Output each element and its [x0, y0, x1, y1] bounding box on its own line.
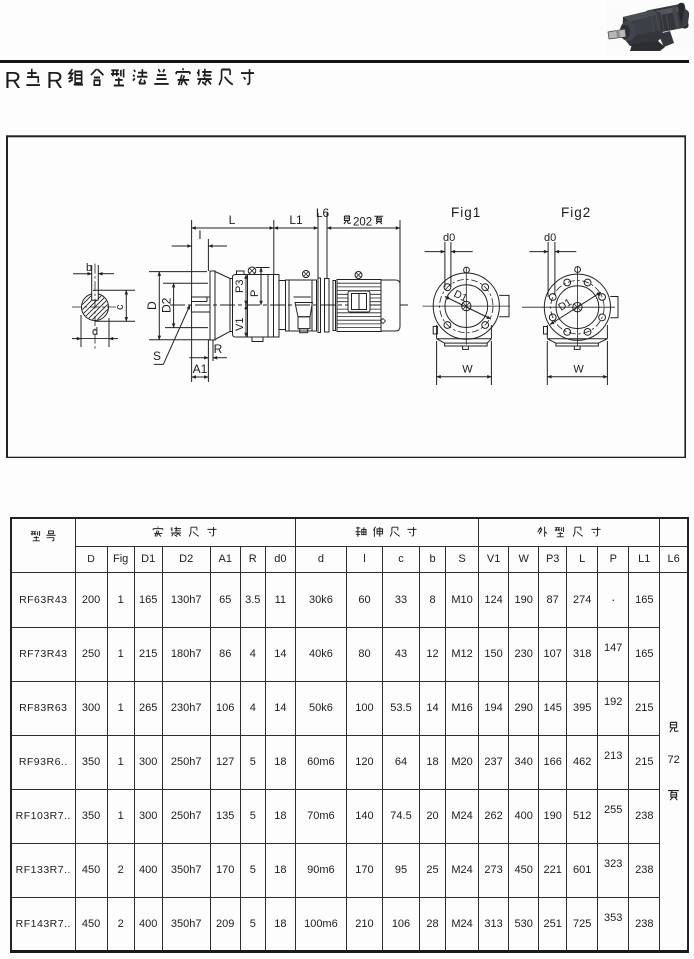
svg-text:D: D — [145, 301, 159, 310]
svg-text:W: W — [573, 364, 584, 376]
svg-text:c: c — [114, 304, 126, 310]
svg-text:R: R — [47, 67, 64, 93]
svg-text:A1: A1 — [193, 362, 208, 376]
svg-text:L6: L6 — [316, 206, 330, 220]
svg-text:L1: L1 — [289, 213, 303, 227]
svg-text:Fig1: Fig1 — [451, 205, 481, 220]
svg-text:W: W — [462, 364, 473, 376]
svg-text:b: b — [86, 262, 92, 274]
svg-text:P: P — [249, 290, 261, 297]
svg-text:V1: V1 — [234, 318, 246, 331]
svg-text:D2: D2 — [160, 297, 174, 313]
svg-text:d: d — [92, 326, 98, 338]
svg-text:R: R — [5, 67, 22, 93]
svg-text:P3: P3 — [234, 280, 246, 293]
svg-text:R: R — [214, 342, 223, 356]
svg-text:l: l — [199, 228, 202, 242]
svg-text:S: S — [153, 349, 161, 363]
svg-text:202: 202 — [353, 217, 372, 229]
svg-text:L: L — [229, 213, 236, 227]
svg-text:Fig2: Fig2 — [561, 205, 591, 220]
